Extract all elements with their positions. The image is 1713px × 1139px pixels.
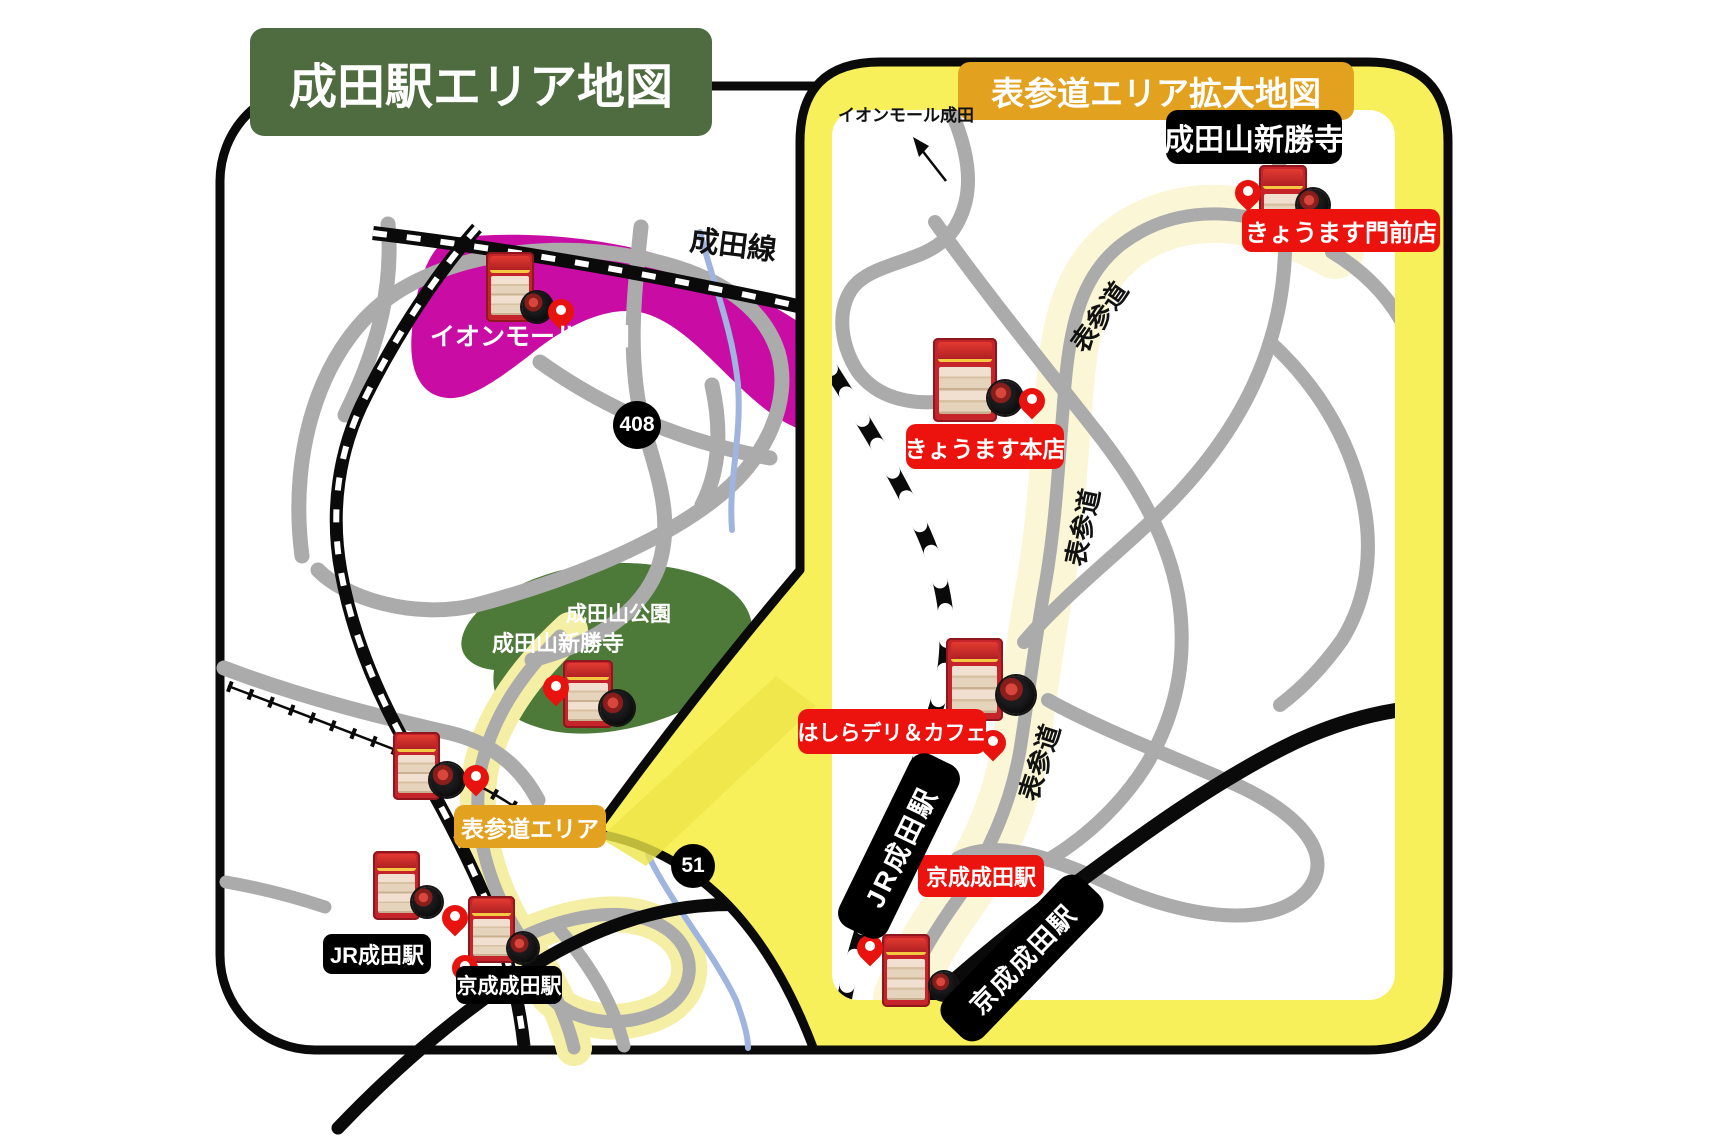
food-photo bbox=[412, 887, 442, 917]
map-pin-icon[interactable] bbox=[543, 675, 569, 707]
keisei-station-red-label: 京成成田駅 bbox=[918, 855, 1044, 897]
shop-photo bbox=[933, 338, 997, 422]
route-badge-51: 51 bbox=[671, 844, 715, 888]
map-pin-icon[interactable] bbox=[1235, 180, 1261, 212]
food-photo bbox=[997, 676, 1035, 714]
food-photo bbox=[600, 691, 634, 725]
shop-monzen-label[interactable]: きょうます門前店 bbox=[1242, 209, 1440, 252]
shop-photo bbox=[882, 934, 930, 1007]
map-pin-icon[interactable] bbox=[463, 765, 489, 797]
route-badge-408: 408 bbox=[613, 401, 661, 449]
left-map-title: 成田駅エリア地図 bbox=[250, 28, 712, 136]
map-canvas bbox=[0, 0, 1713, 1139]
narita-area-map: 成田駅エリア地図 成田線 イオンモール成田 408 成田山公園 成田山新勝寺 表… bbox=[0, 0, 1713, 1139]
aeon-direction-label: イオンモール成田 bbox=[838, 101, 974, 126]
shop-honten-label[interactable]: きょうます本店 bbox=[906, 424, 1064, 469]
temple-label-left: 成田山新勝寺 bbox=[492, 626, 624, 658]
shop-photo bbox=[373, 851, 420, 920]
map-pin-icon[interactable] bbox=[857, 935, 883, 967]
park-label: 成田山公園 bbox=[566, 598, 671, 628]
food-photo bbox=[430, 763, 464, 797]
map-pin-icon[interactable] bbox=[442, 905, 468, 937]
jr-narita-station-left: JR成田駅 bbox=[323, 934, 431, 974]
keisei-narita-station-left: 京成成田駅 bbox=[456, 966, 562, 1004]
temple-label-right: 成田山新勝寺 bbox=[1166, 110, 1342, 164]
shop-hashira-label[interactable]: はしらデリ＆カフェ bbox=[798, 709, 986, 754]
map-pin-icon[interactable] bbox=[1019, 388, 1045, 420]
food-photo bbox=[988, 381, 1022, 415]
aeon-mall-label: イオンモール成田 bbox=[418, 320, 642, 350]
omotesando-area-tag: 表参道エリア bbox=[454, 805, 606, 848]
food-photo bbox=[508, 933, 538, 963]
